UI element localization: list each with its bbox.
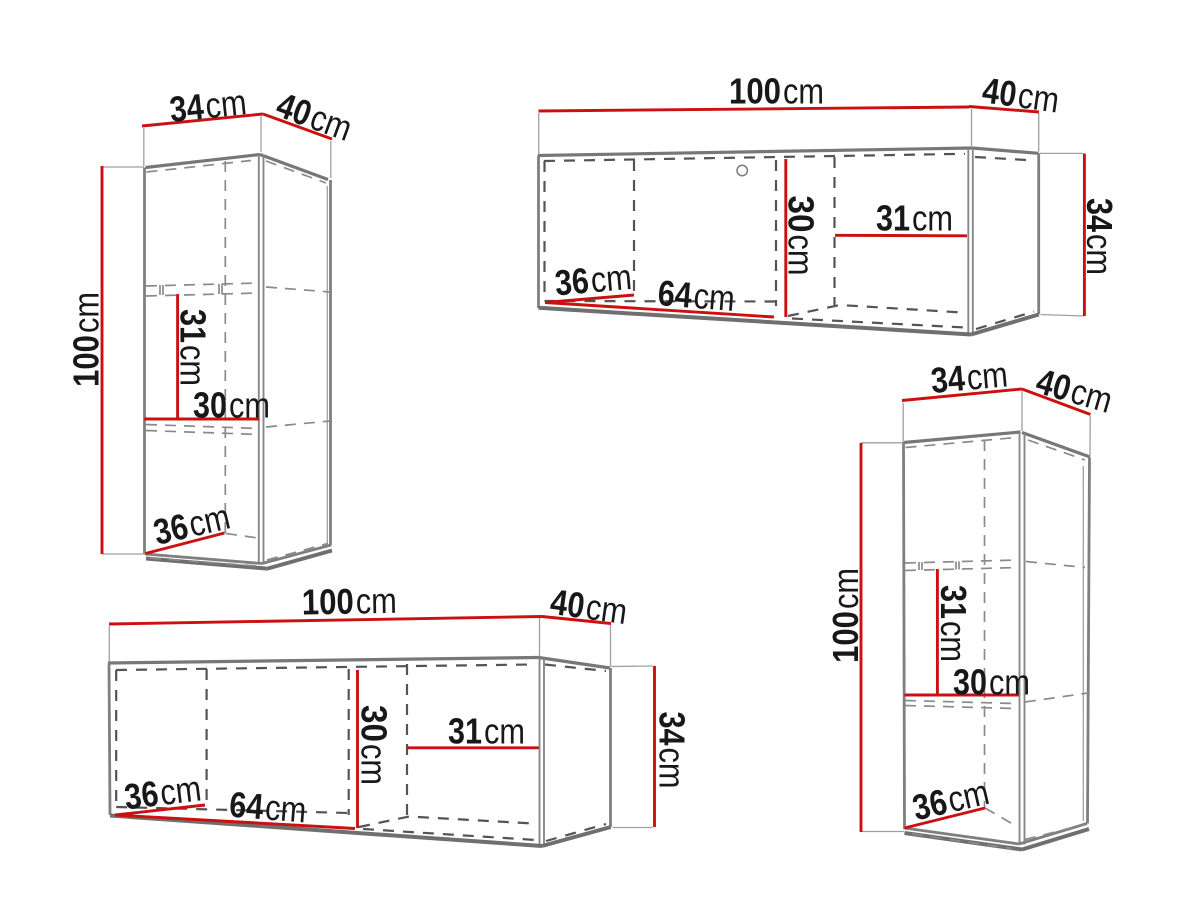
svg-text:cm: cm	[1016, 74, 1062, 120]
svg-text:cm: cm	[781, 235, 822, 276]
svg-text:cm: cm	[989, 662, 1030, 703]
svg-text:31: 31	[448, 711, 482, 752]
svg-text:100: 100	[301, 581, 354, 623]
svg-text:cm: cm	[229, 385, 270, 426]
svg-text:31: 31	[933, 585, 974, 619]
svg-text:cm: cm	[652, 748, 693, 789]
svg-text:cm: cm	[203, 81, 248, 126]
svg-text:cm: cm	[484, 711, 525, 752]
svg-text:34: 34	[168, 86, 206, 130]
svg-text:cm: cm	[173, 345, 214, 386]
svg-text:36: 36	[122, 773, 161, 818]
svg-text:34: 34	[1079, 198, 1120, 232]
svg-text:31: 31	[876, 198, 910, 239]
svg-text:100: 100	[66, 335, 107, 387]
svg-text:40: 40	[548, 581, 587, 626]
svg-text:30: 30	[953, 662, 987, 703]
svg-text:36: 36	[553, 260, 590, 304]
svg-text:cm: cm	[912, 198, 953, 239]
svg-text:34: 34	[929, 357, 966, 401]
svg-text:cm: cm	[158, 767, 204, 813]
svg-text:31: 31	[173, 309, 214, 343]
svg-text:cm: cm	[584, 586, 630, 632]
svg-text:cm: cm	[354, 744, 395, 785]
svg-text:cm: cm	[66, 292, 107, 333]
svg-text:40: 40	[980, 69, 1019, 114]
svg-text:100: 100	[729, 71, 781, 112]
svg-text:cm: cm	[825, 568, 866, 609]
svg-text:cm: cm	[264, 786, 308, 830]
svg-text:cm: cm	[783, 71, 824, 112]
svg-text:cm: cm	[1079, 234, 1120, 275]
svg-text:100: 100	[825, 611, 866, 663]
svg-text:64: 64	[656, 272, 693, 316]
svg-text:cm: cm	[933, 621, 974, 662]
svg-text:30: 30	[193, 385, 227, 426]
svg-text:cm: cm	[589, 256, 633, 300]
svg-text:64: 64	[228, 784, 265, 828]
svg-text:cm: cm	[692, 275, 736, 319]
svg-text:cm: cm	[355, 580, 397, 622]
svg-text:30: 30	[354, 705, 395, 742]
svg-text:30: 30	[781, 196, 822, 233]
svg-text:cm: cm	[965, 353, 1009, 397]
svg-text:34: 34	[652, 712, 693, 746]
